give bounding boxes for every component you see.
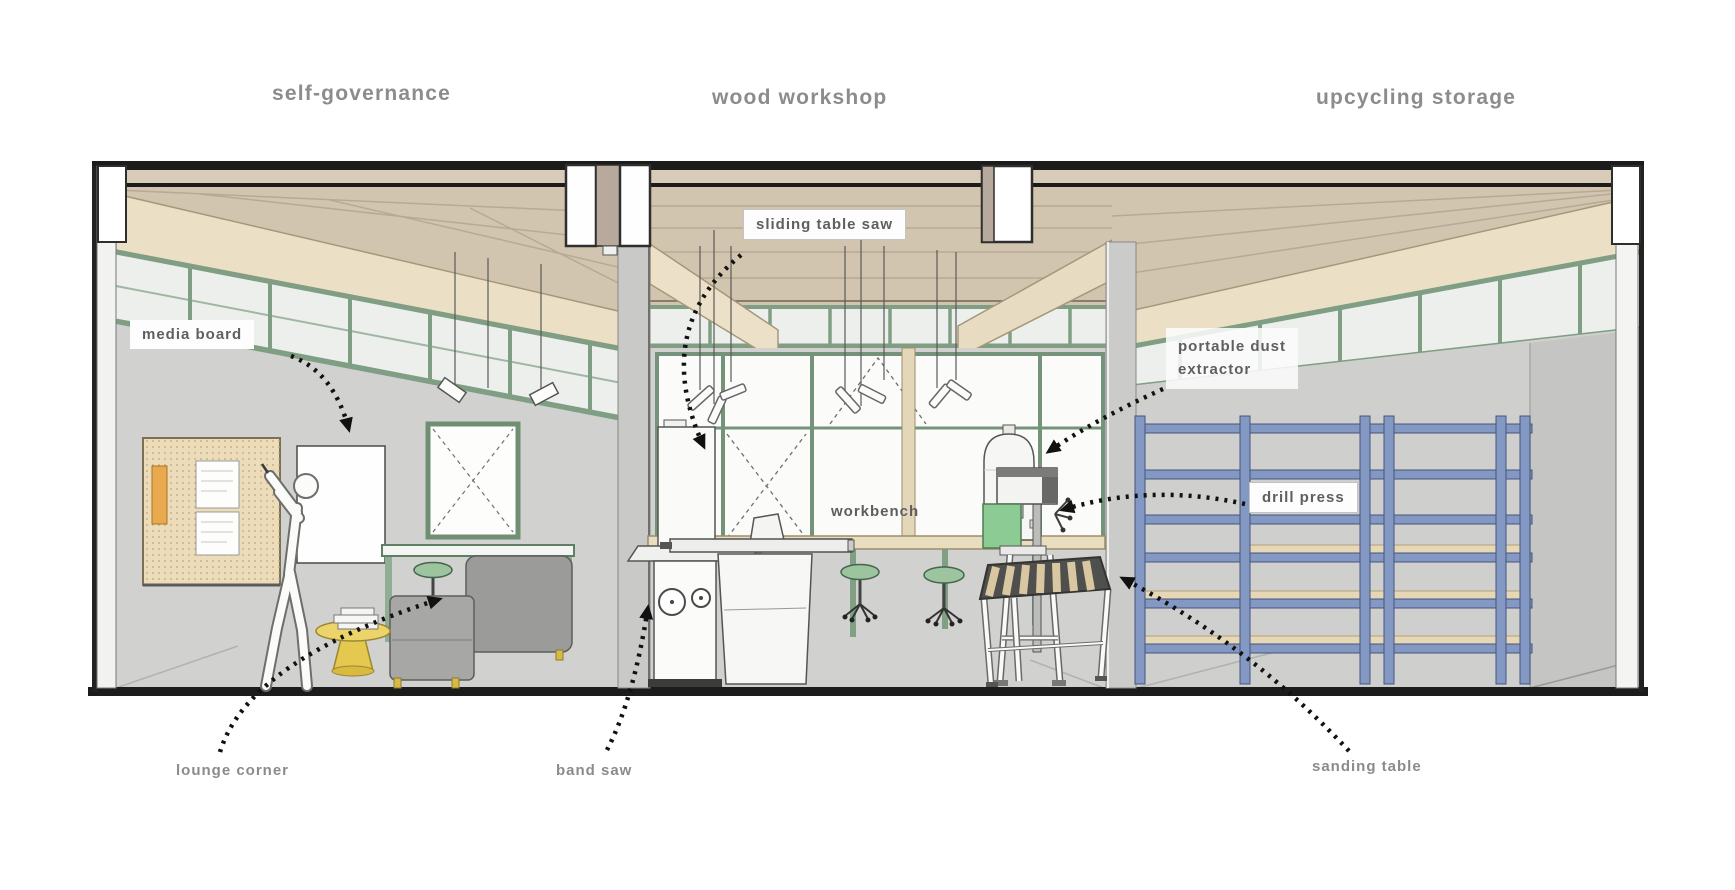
casement-window: [428, 424, 518, 537]
roof-slab: [92, 161, 1644, 170]
label-band-saw: band saw: [556, 762, 632, 779]
left-cut-wall: [97, 166, 116, 688]
whiteboard: [297, 446, 385, 563]
label-portable-dust-extractor-line2: extractor: [1178, 358, 1286, 381]
section-title-wood-workshop: wood workshop: [712, 86, 887, 110]
section-drawing: [0, 0, 1735, 890]
label-workbench: workbench: [831, 503, 919, 520]
book-stack: [334, 608, 378, 629]
label-sliding-table-saw: sliding table saw: [743, 209, 906, 240]
architectural-section-illustration: self-governance wood workshop upcycling …: [0, 0, 1735, 890]
label-portable-dust-extractor: portable dust extractor: [1166, 328, 1298, 389]
label-sanding-table: sanding table: [1312, 758, 1422, 775]
label-drill-press: drill press: [1249, 482, 1358, 513]
pinned-paper: [196, 461, 239, 508]
cut-beam-column: [982, 166, 1032, 242]
label-media-board: media board: [130, 320, 254, 349]
pinned-poster: [152, 466, 167, 524]
cut-beam-column: [566, 165, 650, 255]
media-board-pegboard: [143, 438, 280, 585]
pinned-paper: [196, 512, 239, 555]
partition-wall: [1106, 242, 1136, 688]
label-lounge-corner: lounge corner: [176, 762, 289, 779]
partition-wall: [618, 246, 650, 688]
section-title-self-governance: self-governance: [272, 82, 451, 106]
label-portable-dust-extractor-line1: portable dust: [1178, 335, 1286, 358]
right-room: [1112, 187, 1640, 688]
section-title-upcycling-storage: upcycling storage: [1316, 86, 1516, 110]
floor-slab: [88, 687, 1648, 696]
